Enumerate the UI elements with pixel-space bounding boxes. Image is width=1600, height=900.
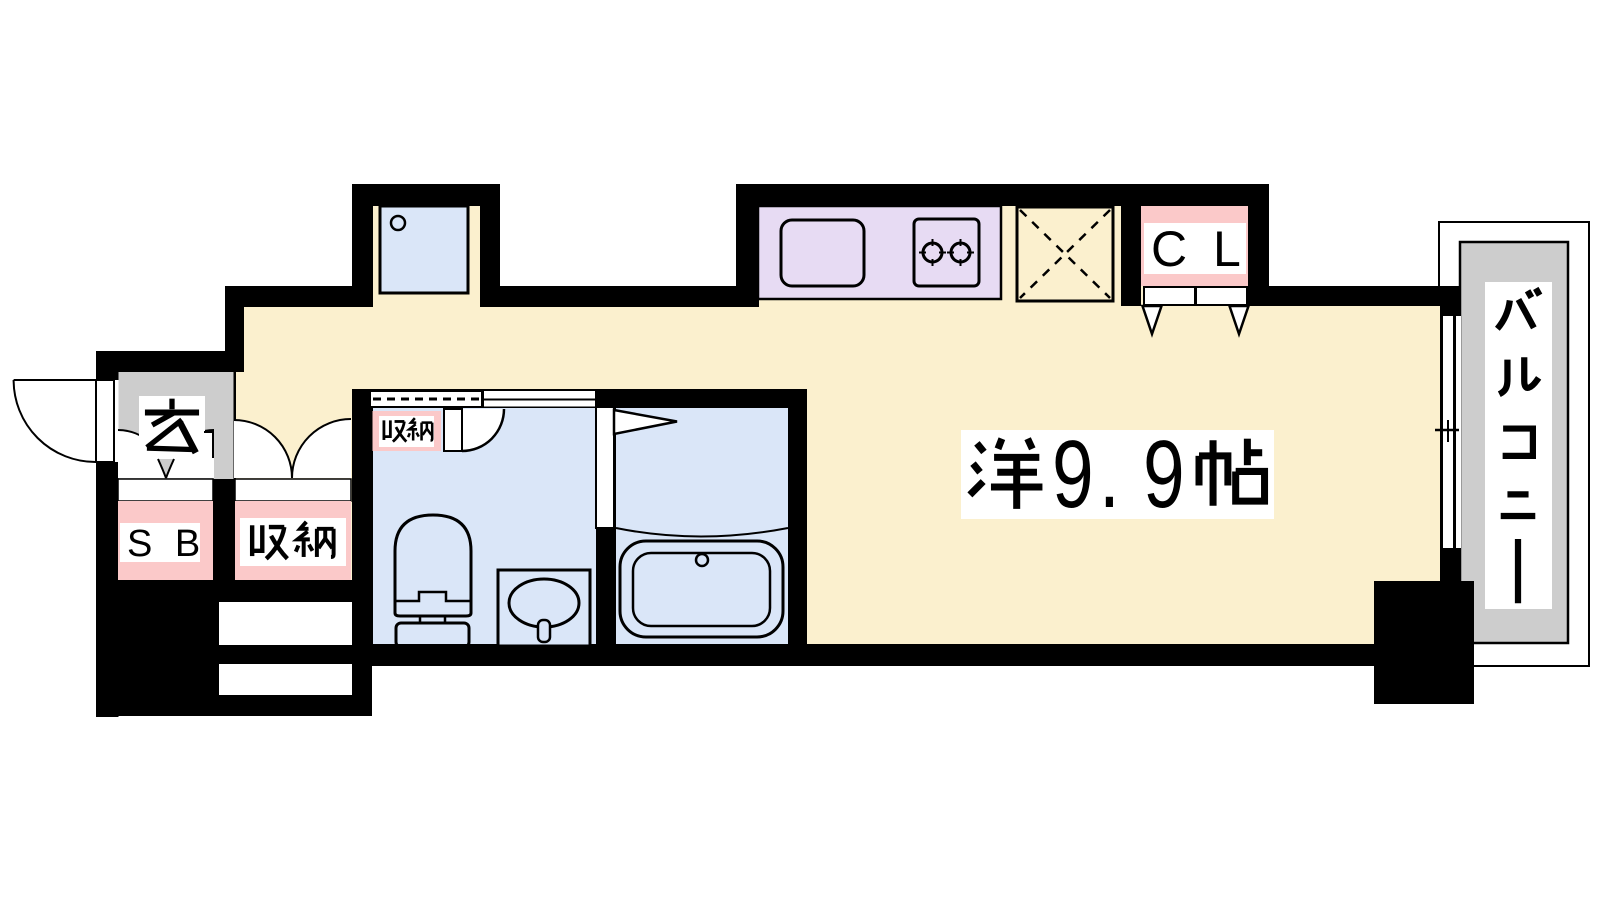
svg-text:.: . (1099, 421, 1120, 528)
svg-text:9: 9 (1052, 421, 1094, 528)
svg-text:S B: S B (127, 523, 206, 565)
svg-text:C L: C L (1151, 221, 1247, 277)
svg-text:9: 9 (1143, 421, 1185, 528)
